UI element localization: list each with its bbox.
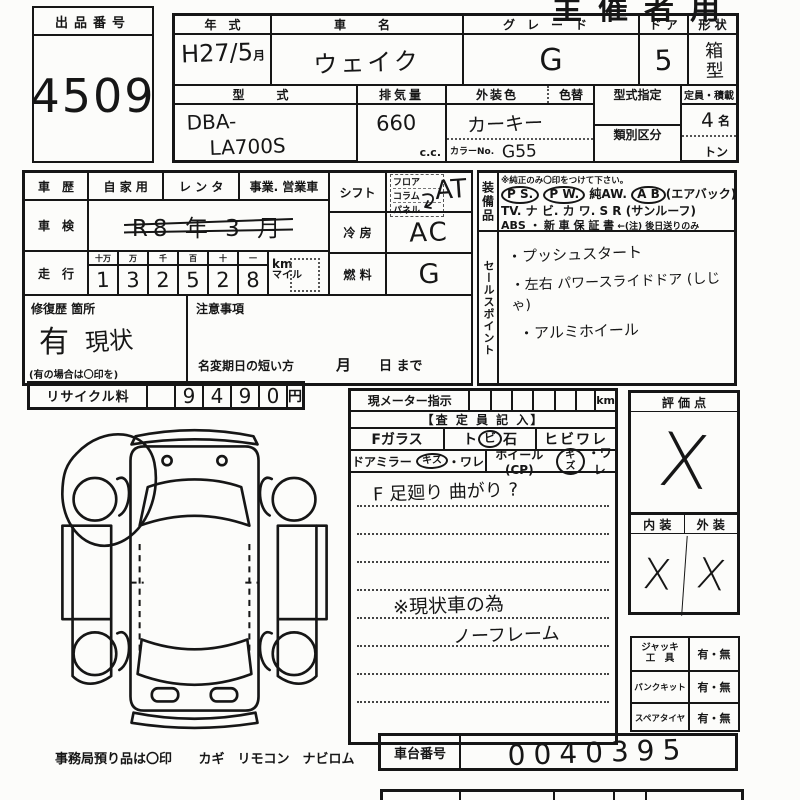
door-mirror-cell: ドアミラー キズ・ワレ bbox=[351, 451, 487, 471]
accessory-yes-no: 有・無 bbox=[690, 704, 738, 732]
mileage-row: 走 行 十万 1 万 3 千 2 百 5 十 2 一 bbox=[22, 250, 330, 296]
recycle-unit: 円 bbox=[288, 384, 302, 407]
fuel-row: 燃 料 G bbox=[328, 252, 473, 296]
mileage-digit: 3 bbox=[119, 266, 148, 295]
exterior-color-value: カーキー bbox=[446, 102, 593, 140]
exterior-color-label: 外装色 bbox=[447, 86, 547, 103]
inspector-note-2: ※現状車の為 bbox=[393, 589, 505, 620]
accessory-yes-no: 有・無 bbox=[690, 672, 738, 702]
caution-deadline: 名変期日の短い方 bbox=[198, 357, 294, 374]
mileage-digit: 1 bbox=[89, 266, 118, 295]
recycle-digit: 9 bbox=[232, 384, 260, 407]
repair-history-box: 修復歴 箇所 有 現状 (有の場合は〇印を) bbox=[22, 294, 188, 386]
inspector-notes-area: F 足廻り 曲がり ? ※現状車の為 ノーフレーム bbox=[348, 471, 618, 745]
capacity-label: 定員・積載 bbox=[682, 86, 736, 105]
inspector-note-1: F 足廻り 曲がり ? bbox=[373, 475, 519, 506]
deposit-items: カギ リモコン ナビロム bbox=[199, 752, 355, 767]
meter-unit: km bbox=[596, 391, 615, 410]
inspector-row2: ドアミラー キズ・ワレ ホイール(CP) キズ・ワレ bbox=[348, 449, 618, 473]
type-designation-cell: 型式指定 類別区分 bbox=[593, 84, 682, 163]
sales-point-item: ・プッシュスタート bbox=[507, 238, 735, 267]
door-label: ド ア bbox=[640, 16, 687, 35]
evaluation-value: X bbox=[626, 407, 742, 518]
accessories-table: ジャッキ 工 具 有・無 パンクキット 有・無 スペアタイヤ 有・無 bbox=[630, 636, 740, 732]
mileage-digit-col: 十 2 bbox=[209, 252, 239, 294]
shift-value: AT bbox=[434, 174, 468, 206]
repair-history-note: (有の場合は〇印を) bbox=[25, 361, 186, 381]
meter-digit-cell bbox=[534, 391, 555, 410]
repair-history-value: 有 bbox=[39, 317, 69, 361]
exterior-color-cell: 外装色 色替 カーキー カラーNo. G55 bbox=[445, 84, 595, 163]
accessory-row: パンクキット 有・無 bbox=[632, 672, 738, 704]
aircon-row: 冷 房 AC bbox=[328, 211, 473, 254]
footer-note: 事務局預り品は〇印 カギ リモコン ナビロム bbox=[55, 748, 355, 767]
mileage-digit-col: 千 2 bbox=[149, 252, 179, 294]
fuel-value: G bbox=[386, 253, 471, 296]
door-cell: ド ア 5 bbox=[638, 13, 689, 86]
mileage-digit: 5 bbox=[179, 266, 208, 295]
lot-number-box: 出品番号 4509 bbox=[32, 6, 154, 163]
equipment-aw: 純AW. bbox=[589, 187, 627, 201]
sales-point-item: ・左右 パワースライドドア (しじゃ) bbox=[510, 267, 734, 315]
meter-digit-cell bbox=[556, 391, 577, 410]
recycle-digit: 0 bbox=[260, 384, 288, 407]
equipment-ps: P S. bbox=[501, 186, 539, 204]
capacity-value: 4 bbox=[701, 108, 715, 132]
displacement-value: 660 bbox=[358, 103, 446, 136]
ton-label: トン bbox=[682, 137, 736, 160]
inspector-note-3: ノーフレーム bbox=[453, 619, 560, 649]
meter-digit-cell bbox=[577, 391, 596, 410]
shift-label: シフト bbox=[330, 173, 387, 211]
shape-label: 形 状 bbox=[689, 16, 736, 35]
history-label: 車 歴 bbox=[25, 173, 89, 199]
mileage-digit: 2 bbox=[209, 266, 238, 295]
grade-label: グレード bbox=[464, 16, 638, 35]
accessory-yes-no: 有・無 bbox=[690, 638, 738, 670]
front-bumper bbox=[132, 430, 258, 444]
displacement-unit: c.c. bbox=[420, 146, 441, 159]
mirror-kizu-circled: キズ bbox=[416, 452, 449, 469]
sales-point-item: ・アルミホイール bbox=[519, 315, 735, 343]
exterior-value: X bbox=[679, 531, 742, 618]
car-name-value: ウェイク bbox=[271, 32, 463, 89]
type-designation-label: 型式指定 bbox=[595, 86, 680, 103]
inspection-label: 車 検 bbox=[25, 201, 89, 250]
repair-condition-value: 現状 bbox=[68, 319, 134, 358]
repair-history-label: 修復歴 箇所 bbox=[25, 296, 186, 317]
color-no-value: G55 bbox=[494, 141, 537, 162]
recycle-digit: 9 bbox=[176, 384, 204, 407]
capacity-unit: 名 bbox=[714, 112, 736, 129]
auction-sheet: 主催者用 出品番号 4509 年 式 H27/5月 車 名 ウェイク グレード … bbox=[0, 0, 800, 800]
rear-window bbox=[138, 639, 252, 684]
color-no-label: カラーNo. bbox=[447, 148, 494, 157]
shape-value: 箱型 bbox=[688, 34, 737, 88]
sales-side-label: セールスポイント bbox=[477, 230, 499, 386]
lot-number-value: 4509 bbox=[34, 36, 152, 156]
meter-digit-cell bbox=[513, 391, 534, 410]
grade-value: G bbox=[464, 35, 638, 85]
model-code-cell: 型 式 DBA- LA700S bbox=[172, 84, 358, 163]
meter-row: 現メーター指示 km bbox=[348, 388, 618, 412]
mileage-digit-col: 一 8 bbox=[239, 252, 269, 294]
mileage-label: 走 行 bbox=[25, 252, 89, 294]
meter-digit-cell bbox=[492, 391, 513, 410]
equipment-pw: P W. bbox=[543, 186, 585, 204]
history-business: 事業. 営業車 bbox=[240, 173, 328, 199]
year-value: H27/5月 bbox=[174, 33, 270, 68]
chassis-number-label: 車台番号 bbox=[381, 736, 461, 768]
class-division-label: 類別区分 bbox=[595, 126, 680, 143]
inspection-row: 車 検 R8 年 3 月 bbox=[22, 199, 330, 252]
inspection-value: R8 年 3 月 bbox=[132, 209, 285, 243]
car-damage-diagram bbox=[52, 420, 337, 735]
office-note: 事務局預り品は〇印 bbox=[55, 752, 172, 767]
door-value: 5 bbox=[639, 34, 688, 86]
wheel-cell: ホイール(CP) キズ・ワレ bbox=[487, 451, 615, 471]
model-code-value: DBA- LA700S bbox=[174, 102, 357, 162]
mileage-digit: 2 bbox=[149, 266, 178, 295]
caution-box: 注意事項 名変期日の短い方 月 日 まで bbox=[186, 294, 473, 386]
year-label: 年 式 bbox=[175, 16, 270, 35]
year-cell: 年 式 H27/5月 bbox=[172, 13, 272, 86]
caution-month: 月 bbox=[336, 354, 351, 375]
recycle-fee-row: リサイクル料 9 4 9 0 円 bbox=[27, 381, 305, 410]
meter-digit-cell bbox=[470, 391, 491, 410]
mileage-digit-col: 十万 1 bbox=[89, 252, 119, 294]
cutoff-bottom-table bbox=[380, 789, 744, 800]
mileage-digit-col: 万 3 bbox=[119, 252, 149, 294]
equipment-side-label: 装備品 bbox=[477, 170, 499, 232]
accessory-row: ジャッキ 工 具 有・無 bbox=[632, 638, 738, 672]
caution-label: 注意事項 bbox=[188, 296, 471, 317]
displacement-label: 排気量 bbox=[358, 86, 445, 105]
shape-cell: 形 状 箱型 bbox=[687, 13, 739, 86]
recycle-digit: 4 bbox=[204, 384, 232, 407]
evaluation-box: 評 価 点 X bbox=[628, 390, 740, 515]
car-name-cell: 車 名 ウェイク bbox=[270, 13, 464, 86]
door-front-right bbox=[278, 526, 327, 619]
fuel-label: 燃 料 bbox=[330, 254, 387, 294]
equipment-box: ※純正のみ〇印をつけて下さい。 P S. P W. 純AW. A B(エアバック… bbox=[497, 170, 737, 232]
history-private: 自 家 用 bbox=[89, 173, 164, 199]
chassis-number-value: 0040395 bbox=[461, 731, 736, 773]
capacity-cell: 定員・積載 4 名 トン bbox=[680, 84, 739, 163]
meter-label: 現メーター指示 bbox=[351, 391, 470, 410]
interior-exterior-box: 内 装 外 装 X X bbox=[628, 513, 740, 615]
rear-bumper bbox=[132, 713, 258, 728]
inspector-row1: Fガラス ト ビ 石 ヒビワレ bbox=[348, 427, 618, 451]
equipment-ab: A B bbox=[631, 186, 666, 204]
aircon-label: 冷 房 bbox=[330, 213, 387, 252]
grade-cell: グレード G bbox=[462, 13, 640, 86]
aircon-value: AC bbox=[386, 212, 471, 254]
mileage-digit: 8 bbox=[239, 266, 268, 295]
wheel-front-right bbox=[273, 478, 316, 521]
shift-row: シフト フロア コラム パネル AT bbox=[328, 170, 473, 213]
accessory-row: スペアタイヤ 有・無 bbox=[632, 704, 738, 732]
sales-points-box: ・プッシュスタート ・左右 パワースライドドア (しじゃ) ・アルミホイール bbox=[497, 230, 737, 386]
history-row: 車 歴 自 家 用 レ ン タ 事業. 営業車 bbox=[22, 170, 330, 201]
interior-label: 内 装 bbox=[631, 515, 685, 533]
displacement-cell: 排気量 660 c.c. bbox=[356, 84, 447, 163]
model-code-line2: LA700S bbox=[187, 130, 357, 162]
caution-until: 日 まで bbox=[379, 355, 423, 374]
color-change-label: 色替 bbox=[547, 86, 593, 103]
mileage-unit-checkbox bbox=[290, 258, 320, 292]
front-glass-label: Fガラス bbox=[351, 429, 445, 449]
recycle-fee-label: リサイクル料 bbox=[30, 384, 148, 407]
interior-value: X bbox=[628, 532, 687, 616]
equipment-row2: TV. ナ ビ. カ ワ. S R (サンルーフ) bbox=[501, 204, 730, 218]
chassis-number-box: 車台番号 0040395 bbox=[378, 733, 738, 771]
history-rental: レ ン タ bbox=[164, 173, 239, 199]
equipment-note: ※純正のみ〇印をつけて下さい。 bbox=[501, 174, 730, 186]
mileage-digit-col: 百 5 bbox=[179, 252, 209, 294]
lot-number-label: 出品番号 bbox=[34, 8, 152, 36]
equipment-ab-note: (エアバック) bbox=[666, 187, 737, 201]
wheel-front-left bbox=[74, 478, 117, 521]
